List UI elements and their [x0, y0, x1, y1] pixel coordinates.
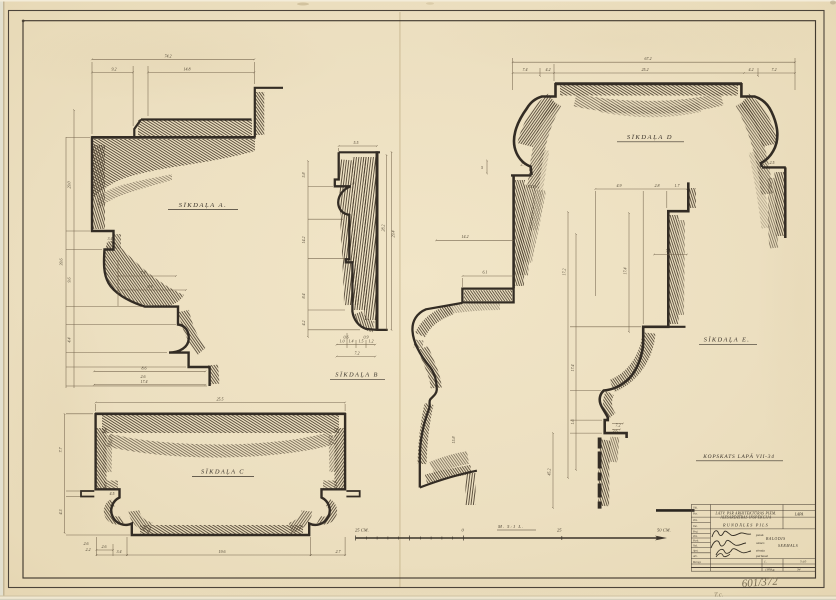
svg-text:39.6: 39.6 — [59, 259, 64, 266]
svg-text:19.6: 19.6 — [219, 549, 226, 554]
svg-text:uzmer.: uzmer. — [756, 541, 765, 545]
svg-text:5.8: 5.8 — [301, 173, 306, 178]
svg-text:2.6: 2.6 — [84, 541, 89, 546]
svg-text:601/372: 601/372 — [741, 575, 778, 590]
svg-text:17.4: 17.4 — [141, 379, 148, 384]
svg-text:T.c.: T.c. — [714, 592, 724, 599]
svg-text:SĪKDAĻA A.: SĪKDAĻA A. — [179, 202, 227, 209]
svg-text:4.4: 4.4 — [67, 338, 72, 343]
svg-text:Vad.: Vad. — [693, 544, 698, 547]
svg-text:17.2: 17.2 — [562, 269, 567, 276]
svg-text:45.2: 45.2 — [547, 469, 552, 476]
svg-text:2.8: 2.8 — [655, 183, 660, 188]
svg-text:2.6: 2.6 — [102, 544, 107, 549]
svg-text:7.4: 7.4 — [141, 270, 146, 275]
svg-text:Proj.: Proj. — [692, 530, 699, 533]
svg-text:2.6: 2.6 — [141, 374, 146, 379]
svg-text:Parb.: Parb. — [692, 539, 699, 542]
svg-text:SĪKDAĻA C: SĪKDAĻA C — [201, 469, 245, 476]
svg-text:1958.g.: 1958.g. — [765, 568, 775, 572]
svg-text:Dat.: Dat. — [692, 525, 698, 528]
svg-text:7.2: 7.2 — [772, 67, 777, 72]
svg-text:4.2: 4.2 — [546, 67, 551, 72]
svg-text:SĪKDAĻA E.: SĪKDAĻA E. — [704, 337, 751, 344]
svg-text:25.2: 25.2 — [642, 67, 649, 72]
svg-text:7.2: 7.2 — [616, 423, 621, 428]
svg-text:Merogs: Merogs — [692, 561, 701, 564]
svg-text:50 CM.: 50 CM. — [657, 528, 671, 533]
svg-text:15.8: 15.8 — [451, 437, 456, 444]
svg-text:29.0: 29.0 — [67, 182, 72, 189]
svg-text:Apst.: Apst. — [692, 550, 699, 553]
svg-text:4.5: 4.5 — [110, 491, 115, 496]
svg-text:2.2: 2.2 — [107, 244, 112, 249]
svg-text:7.2: 7.2 — [355, 351, 360, 356]
svg-text:BALODIS: BALODIS — [766, 537, 786, 541]
svg-text:Zim.: Zim. — [693, 519, 698, 522]
svg-text:2.5: 2.5 — [770, 160, 775, 165]
svg-text:17.4: 17.4 — [570, 365, 575, 372]
svg-text:Obj.: Obj. — [693, 507, 698, 510]
svg-text:25: 25 — [557, 528, 562, 533]
svg-text:17.4: 17.4 — [623, 268, 628, 275]
svg-text:SĪKDAĻA B: SĪKDAĻA B — [335, 372, 379, 379]
svg-text:25 CM.: 25 CM. — [355, 528, 369, 533]
svg-text:9.6: 9.6 — [67, 278, 72, 283]
svg-text:28.2: 28.2 — [381, 225, 386, 232]
svg-text:74.2: 74.2 — [165, 54, 172, 59]
svg-text:SERMALS: SERMALS — [778, 544, 798, 548]
svg-text:Arh.: Arh. — [692, 555, 698, 558]
svg-text:1.6: 1.6 — [570, 420, 575, 425]
svg-text:5.5: 5.5 — [354, 140, 359, 145]
svg-text:25.5: 25.5 — [217, 397, 224, 402]
svg-text:M. 5:1 L.: M. 5:1 L. — [497, 524, 524, 529]
svg-text:3.4: 3.4 — [108, 236, 113, 241]
svg-text:14.2: 14.2 — [301, 237, 306, 244]
svg-text:SĪKDAĻA D: SĪKDAĻA D — [627, 134, 673, 141]
svg-text:7.4: 7.4 — [666, 249, 671, 254]
svg-text:5: 5 — [481, 165, 483, 170]
svg-text:RUNDĀLES PILS: RUNDĀLES PILS — [722, 523, 769, 528]
svg-text:LAPA: LAPA — [794, 513, 804, 517]
svg-text:7.4: 7.4 — [523, 67, 528, 72]
svg-text:KOPSKATS LAPĀ VII-34: KOPSKATS LAPĀ VII-34 — [702, 453, 775, 460]
svg-text:0.9: 0.9 — [364, 335, 369, 340]
svg-text:6.1: 6.1 — [483, 270, 488, 275]
svg-text:4.2: 4.2 — [301, 321, 306, 326]
svg-text:14.2: 14.2 — [462, 234, 469, 239]
svg-text:29.4: 29.4 — [391, 231, 396, 238]
svg-text:8.4: 8.4 — [148, 284, 153, 289]
svg-text:zimeja: zimeja — [755, 549, 765, 553]
svg-text:1.: 1. — [764, 560, 767, 564]
svg-text:2.2: 2.2 — [86, 547, 91, 552]
svg-text:parbaud.: parbaud. — [755, 554, 768, 558]
svg-text:Pas.: Pas. — [692, 513, 698, 516]
svg-text:3.6: 3.6 — [613, 429, 618, 434]
svg-text:1.2: 1.2 — [369, 339, 374, 344]
svg-text:AIZSARDZĪBAS INSPEKCIJA: AIZSARDZĪBAS INSPEKCIJA — [720, 515, 772, 520]
svg-text:4.2: 4.2 — [749, 67, 754, 72]
svg-text:1.4: 1.4 — [349, 339, 354, 344]
svg-text:5:10: 5:10 — [800, 560, 807, 564]
svg-text:0.6: 0.6 — [344, 335, 349, 340]
svg-text:Zim.: Zim. — [693, 535, 698, 538]
svg-text:14.8: 14.8 — [184, 67, 191, 72]
svg-text:9.2: 9.2 — [112, 67, 117, 72]
svg-text:8.6: 8.6 — [142, 365, 147, 370]
svg-text:1.4: 1.4 — [350, 181, 355, 186]
svg-text:8.4: 8.4 — [301, 294, 306, 299]
svg-text:pasut.: pasut. — [755, 533, 764, 537]
svg-text:4.9: 4.9 — [617, 183, 622, 188]
svg-text:67.2: 67.2 — [645, 56, 652, 61]
svg-text:34: 34 — [797, 568, 801, 572]
svg-text:4.3: 4.3 — [58, 510, 63, 515]
svg-text:3.4: 3.4 — [117, 549, 122, 554]
